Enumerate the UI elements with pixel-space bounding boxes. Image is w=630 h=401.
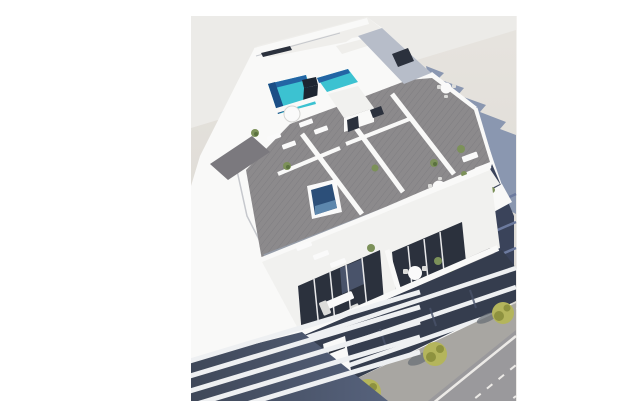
street-tree [492,302,514,324]
attic-plant [367,244,375,252]
attic-plant [434,257,442,265]
render-canvas [40,16,630,401]
jacuzzi [307,179,342,219]
parasol [284,106,300,122]
architectural-render [40,16,630,401]
street-tree [423,342,447,366]
